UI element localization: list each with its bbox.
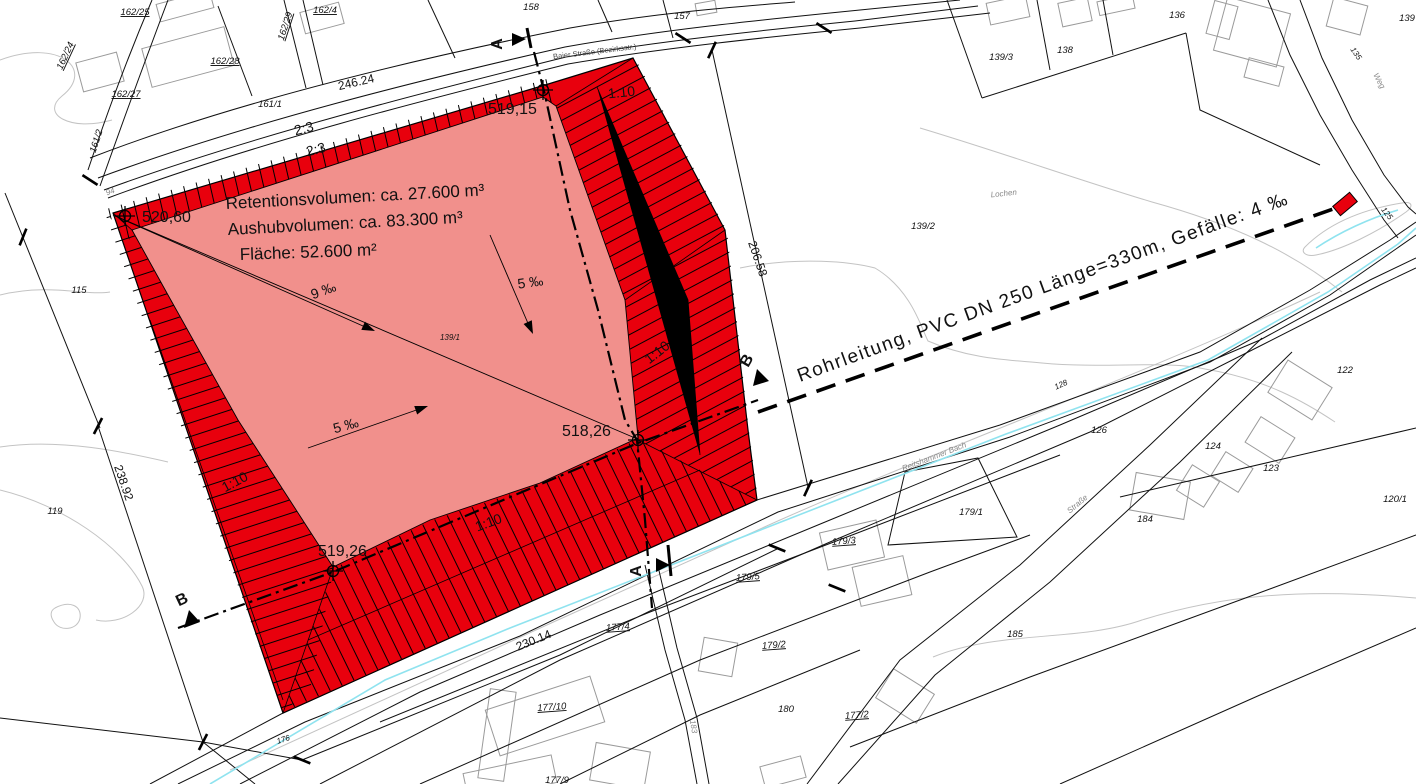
parcel-label-179-1: 179/1	[959, 507, 983, 518]
dim-tick	[675, 33, 690, 43]
contour	[0, 290, 110, 295]
building	[1097, 0, 1135, 16]
retention-basin	[103, 56, 758, 713]
section-marker-bar	[527, 28, 531, 48]
elevation-east: 518,26	[562, 423, 611, 440]
parcel-line	[0, 718, 302, 760]
parcel-label-162-28: 162/28	[210, 56, 240, 67]
building	[1213, 0, 1290, 67]
parcel-line	[1186, 33, 1320, 165]
field-name-label: Lochen	[990, 188, 1018, 200]
parcel-line	[428, 0, 455, 58]
building	[478, 689, 516, 782]
parcel-label-177-10: 177/10	[537, 701, 567, 714]
parcel-line	[5, 193, 100, 428]
parcel-label-119: 119	[47, 506, 63, 517]
parcel-line	[663, 0, 673, 38]
contour	[0, 490, 144, 621]
section-marker-triangle	[656, 558, 670, 572]
building	[986, 0, 1030, 25]
site-plan-canvas: A A B B Rohrleitung, PVC DN 250 Länge=33…	[0, 0, 1416, 784]
dimension-east: 206.58	[745, 239, 770, 279]
parcel-label-180: 180	[778, 704, 795, 715]
road-edge	[1300, 0, 1416, 214]
parcel-label-185: 185	[1007, 629, 1024, 640]
parcel-label-177-9: 177/9	[545, 775, 569, 784]
building	[1176, 465, 1219, 507]
building	[485, 676, 604, 756]
building	[695, 0, 717, 15]
parcel-label-161-2: 161/2	[88, 128, 106, 155]
parcel-line	[1037, 0, 1050, 70]
parcel-label-161-1: 161/1	[258, 99, 282, 110]
contour-blob	[51, 604, 80, 628]
parcel-label-123: 123	[1263, 463, 1280, 474]
parcel-line	[982, 33, 1186, 98]
parcel-label-139-3: 139/3	[989, 52, 1013, 63]
contour	[933, 594, 1416, 657]
building	[1058, 0, 1092, 27]
parcel-line	[203, 742, 255, 784]
way-label: Weg	[1371, 72, 1387, 91]
parcel-label-126: 126	[1091, 425, 1108, 436]
section-label-a-bottom: A	[628, 565, 645, 577]
section-marker-triangle	[753, 369, 769, 386]
building	[698, 637, 737, 676]
parcel-line	[1060, 628, 1416, 784]
parcel-line	[218, 6, 252, 96]
parcel-label-136: 136	[1169, 10, 1186, 21]
building	[1130, 473, 1191, 520]
section-label-b-left: B	[173, 590, 191, 610]
parcel-line	[1103, 0, 1113, 55]
site-plan-map: A A B B Rohrleitung, PVC DN 250 Länge=33…	[0, 0, 1416, 784]
section-marker-triangle	[184, 610, 200, 628]
path-number-label: 183	[688, 719, 699, 734]
slope-2-3-a: 2:3	[292, 118, 315, 138]
parcel-label-177-2: 177/2	[845, 709, 870, 722]
parcel-label-162-27: 162/27	[111, 89, 141, 100]
elevation-northwest: 520,60	[142, 209, 191, 226]
parcel-label-135: 135	[1349, 46, 1364, 63]
building	[590, 743, 651, 784]
dim-tick	[82, 175, 97, 185]
parcel-label-139-1: 139/1	[440, 333, 460, 342]
building	[760, 756, 806, 784]
parcel-label-179-3: 179/3	[832, 535, 857, 548]
outlet-structure	[1333, 192, 1358, 215]
road-edge	[807, 338, 1262, 784]
pipeline: Rohrleitung, PVC DN 250 Länge=330m, Gefä…	[758, 189, 1357, 412]
parcel-label-158: 158	[523, 2, 540, 13]
dim-tick	[829, 585, 846, 592]
building	[1326, 0, 1368, 35]
path-edge	[645, 565, 697, 784]
section-marker-bar	[668, 545, 671, 576]
parcel-label-139: 139	[1399, 13, 1416, 24]
building	[156, 0, 214, 22]
parcel-label-115: 115	[71, 285, 87, 296]
parcel-label-124: 124	[1205, 441, 1221, 452]
dim-tick	[769, 545, 786, 552]
parcel-label-139-2: 139/2	[911, 221, 935, 232]
dim-tick	[804, 480, 812, 496]
slope-1-10-north: 1:10	[607, 83, 636, 102]
dimension-west: 238.92	[111, 463, 136, 503]
parcel-line	[850, 535, 1416, 747]
dim-tick	[94, 418, 102, 434]
street-name-label: Baier Straße (Bezirksstr.)	[553, 42, 638, 61]
parcel-label-125: 125	[1379, 205, 1395, 221]
parcel-label-138: 138	[1057, 45, 1074, 56]
building	[463, 755, 557, 784]
parcel-label-128: 128	[1053, 378, 1069, 392]
parcel-label-162-25: 162/25	[120, 7, 150, 18]
section-label-a-top: A	[489, 38, 506, 50]
parcel-label-179-2: 179/2	[762, 639, 787, 652]
building	[76, 52, 124, 92]
elevation-north: 519,15	[488, 101, 537, 118]
parcel-label-162-29: 162/29	[276, 10, 296, 42]
section-marker-triangle	[512, 33, 526, 46]
parcel-label-120-1: 120/1	[1383, 494, 1407, 505]
contour	[0, 444, 168, 462]
building	[1211, 452, 1253, 493]
dimension-north: 246.24	[337, 71, 376, 93]
pipeline-label: Rohrleitung, PVC DN 250 Länge=330m, Gefä…	[795, 189, 1292, 387]
parcel-label-162-4: 162/4	[313, 5, 337, 16]
elevation-south: 519,26	[318, 543, 367, 560]
parcel-label-157: 157	[674, 11, 691, 22]
parcel-label-122: 122	[1337, 365, 1354, 376]
building	[876, 669, 935, 723]
parcel-label-177-4: 177/4	[606, 621, 630, 634]
pipeline-dashed-line	[758, 208, 1336, 412]
parcel-label-184: 184	[1137, 514, 1153, 525]
parcel-line	[560, 650, 860, 784]
parcel-line	[598, 0, 612, 32]
parcel-label-179-5: 179/5	[736, 571, 761, 584]
building	[1245, 417, 1295, 464]
